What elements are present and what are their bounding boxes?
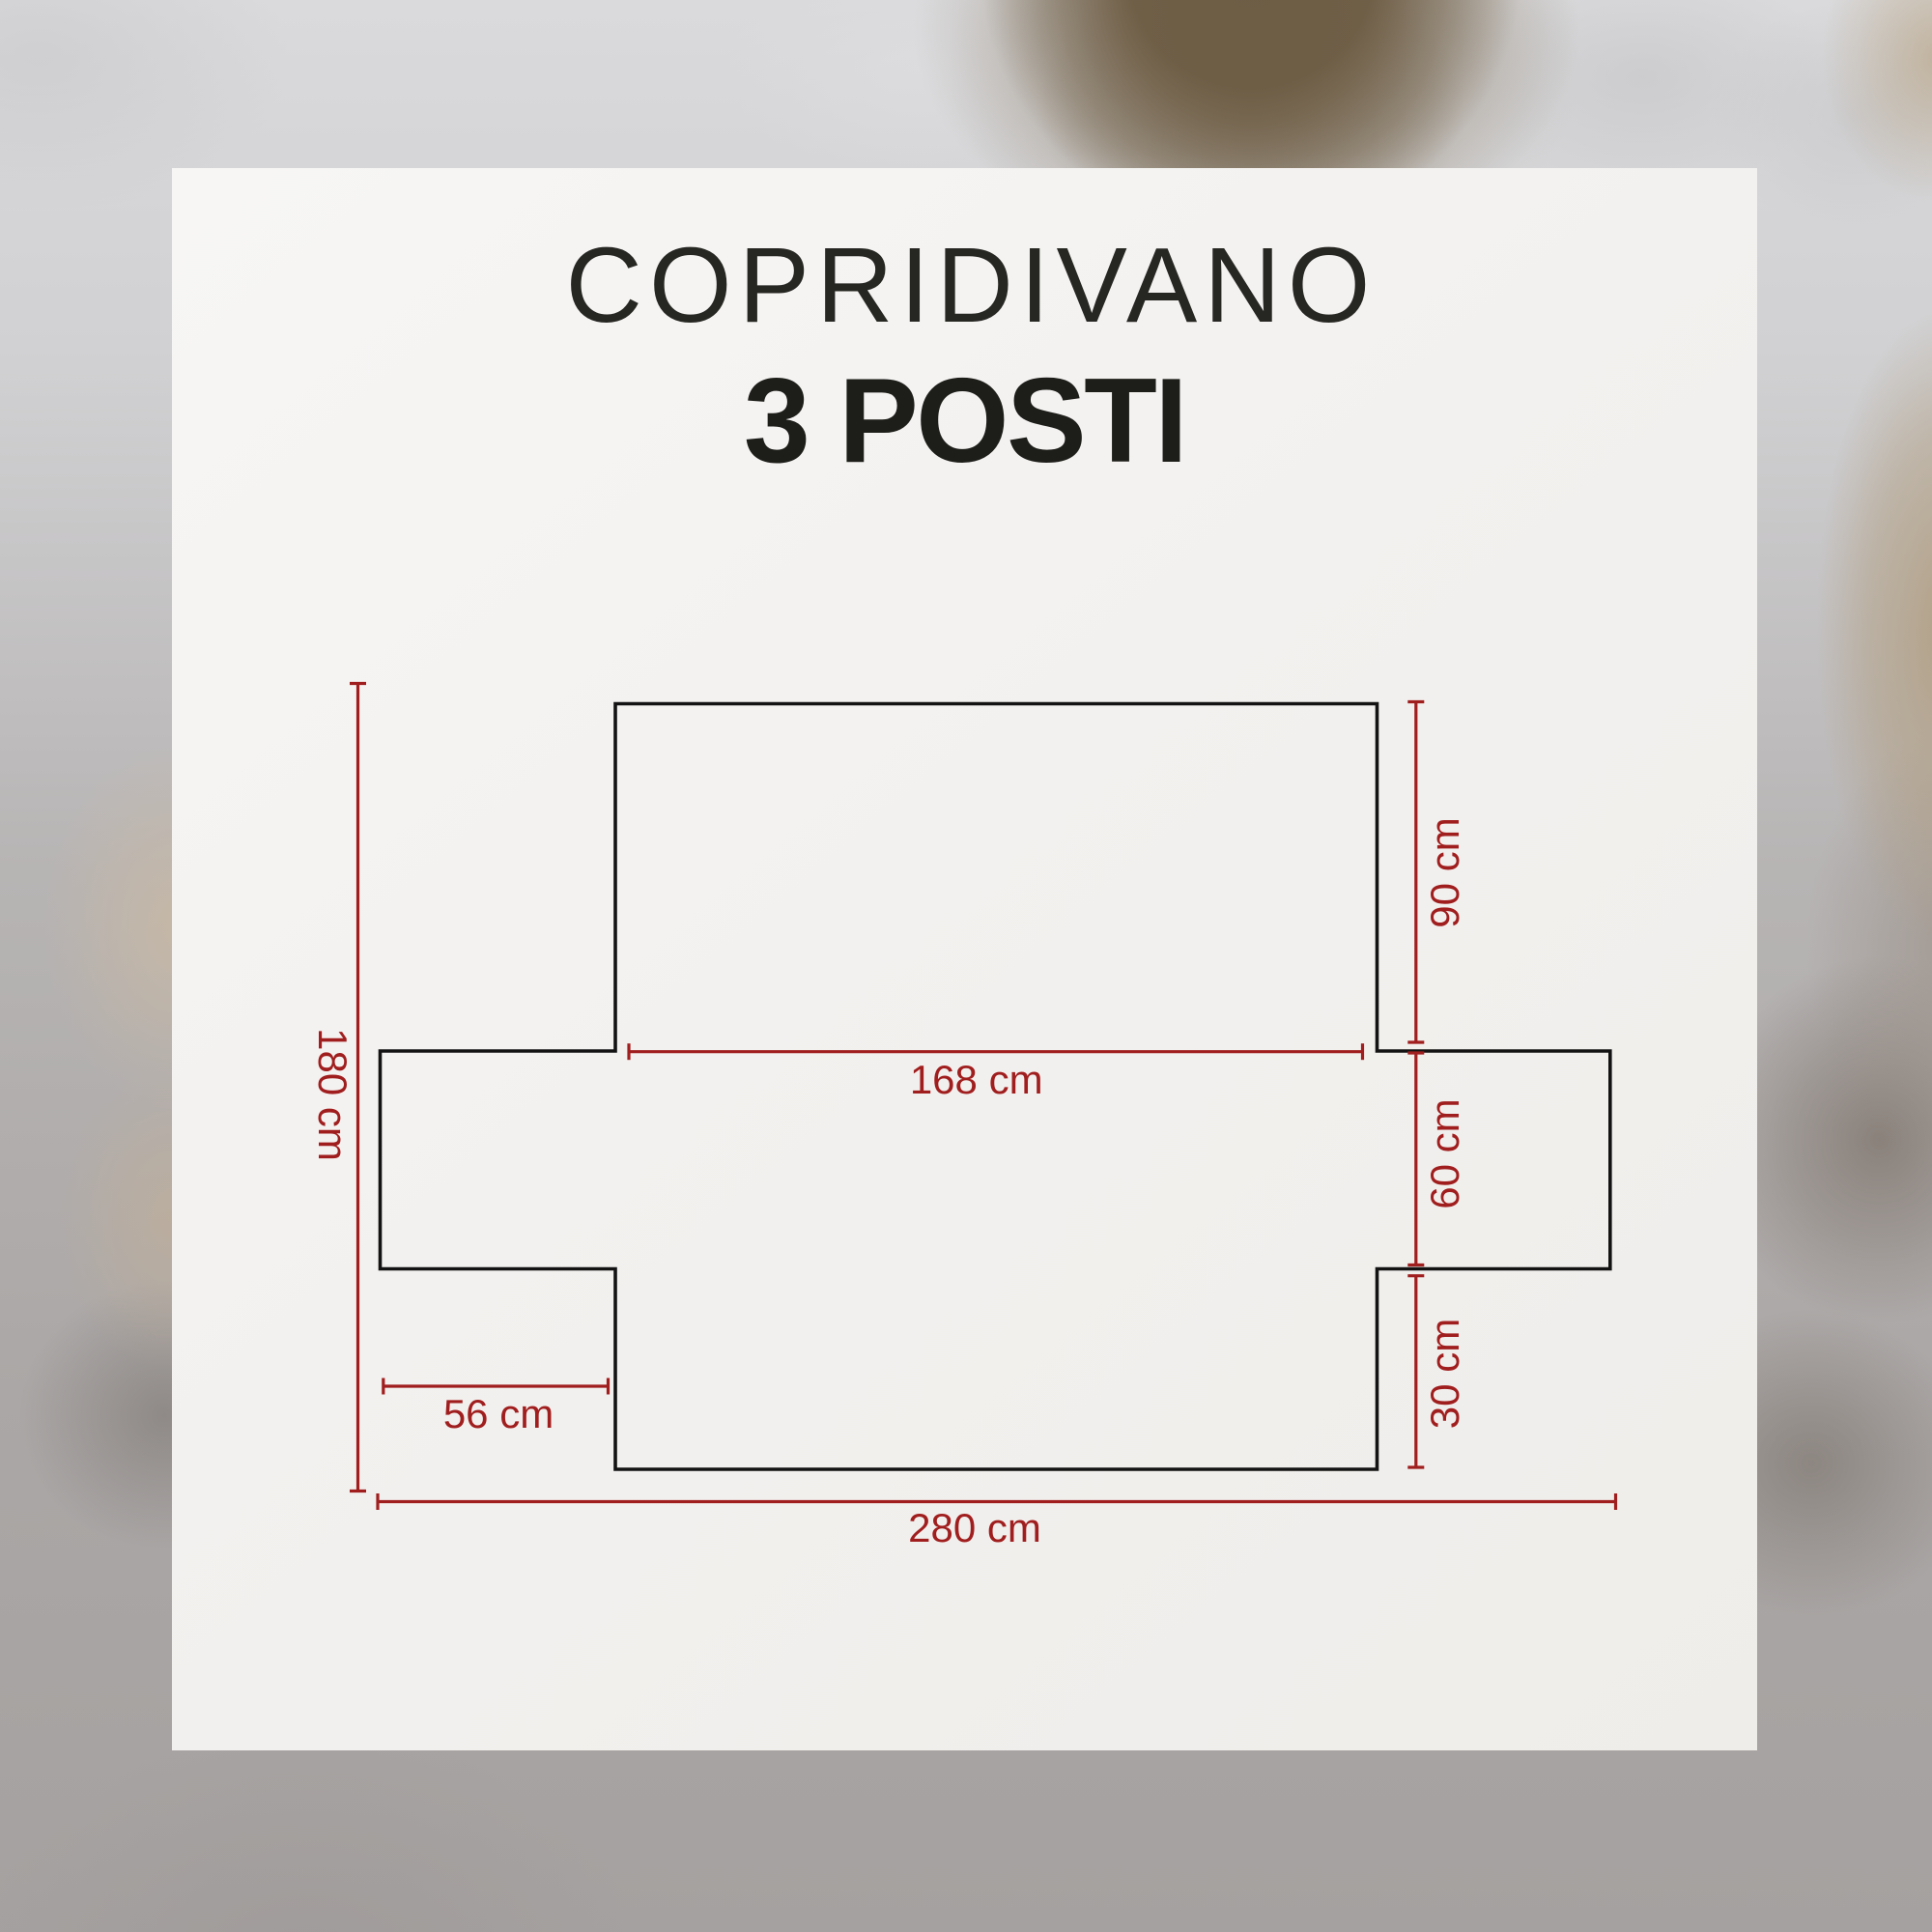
svg-text:56 cm: 56 cm bbox=[443, 1391, 554, 1436]
svg-text:168 cm: 168 cm bbox=[910, 1057, 1043, 1102]
svg-text:90 cm: 90 cm bbox=[1422, 817, 1467, 927]
svg-text:280 cm: 280 cm bbox=[908, 1505, 1041, 1550]
svg-text:60 cm: 60 cm bbox=[1422, 1098, 1467, 1208]
svg-text:180 cm: 180 cm bbox=[310, 1028, 355, 1161]
svg-text:30 cm: 30 cm bbox=[1422, 1319, 1467, 1429]
